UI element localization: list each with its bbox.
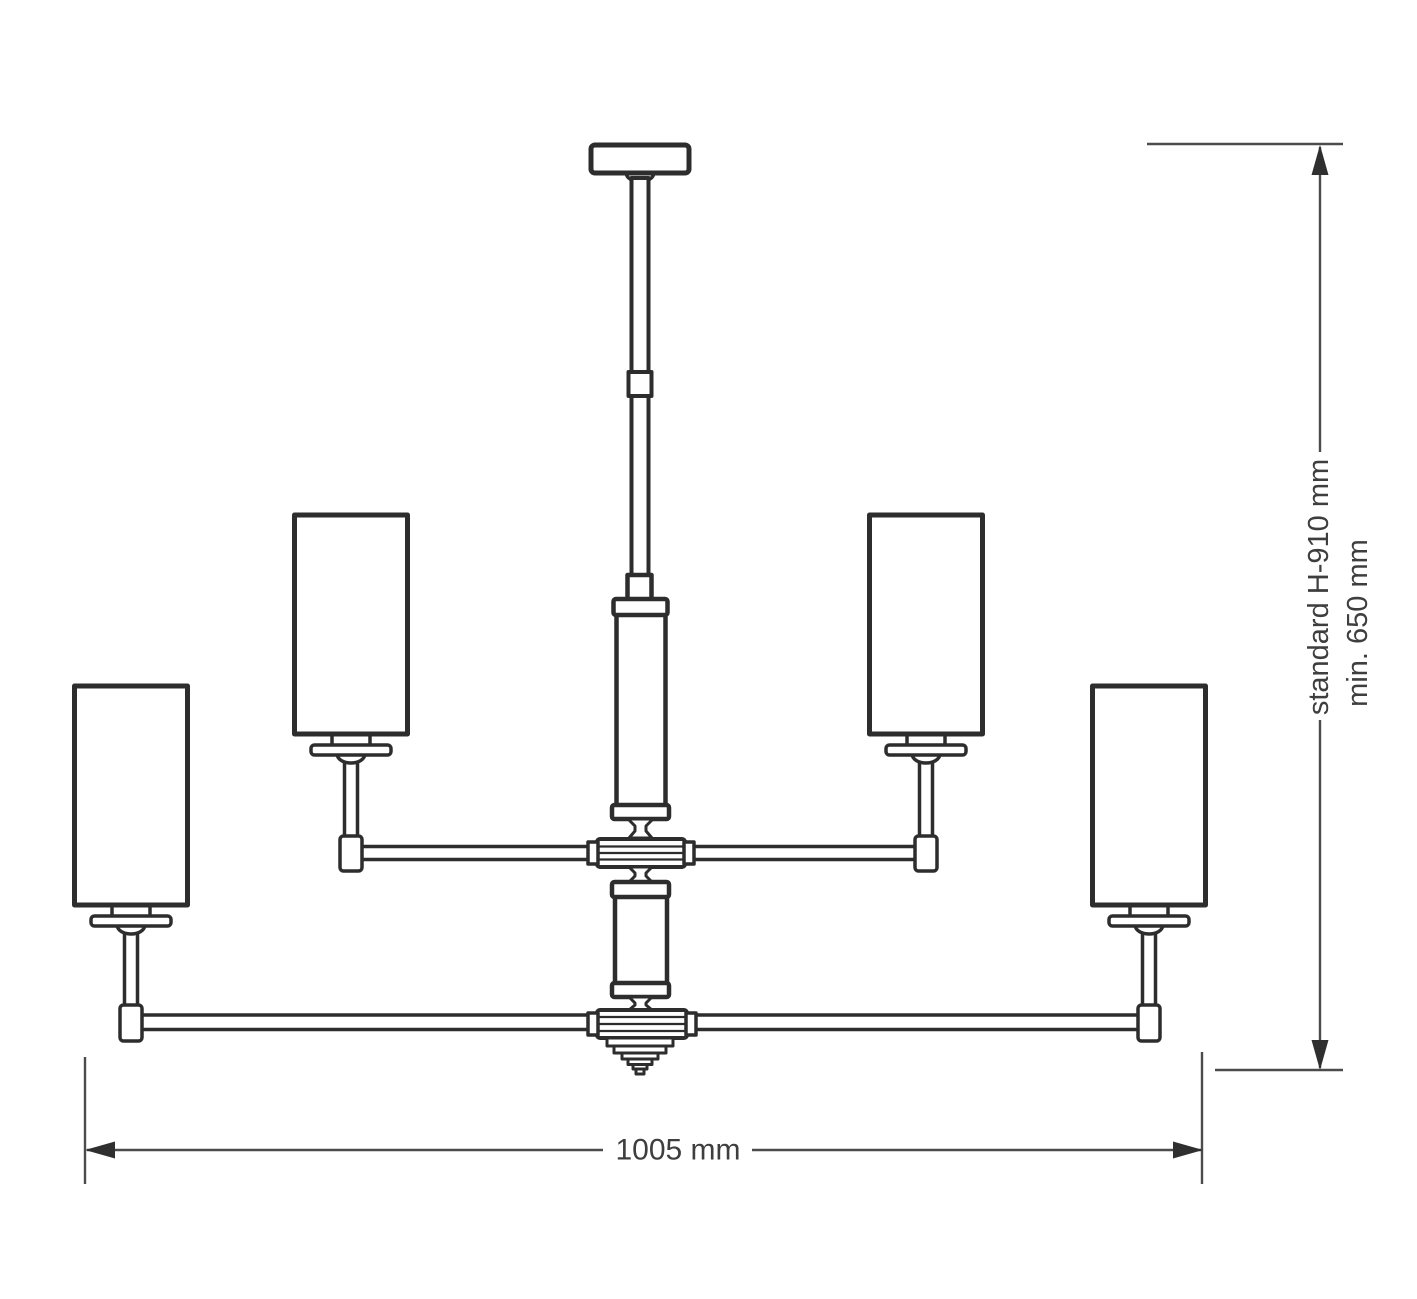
lower-left-arm: [128, 1015, 593, 1030]
height-standard-label: standard H-910 mm: [1303, 459, 1335, 715]
suspension: [591, 145, 689, 577]
chandelier-drawing: [75, 145, 1206, 1074]
rod-coupler: [629, 372, 652, 396]
lamp-shade: [870, 515, 983, 734]
chandelier-dimension-diagram: standard H-910 mm min. 650 mm 1005 mm: [0, 0, 1417, 1299]
rod-upper: [632, 178, 649, 374]
upper-hub-right-cap: [684, 842, 694, 864]
mid-column-top-cap: [612, 882, 669, 897]
lamp-shade: [75, 686, 188, 905]
upper-hub-left-cap: [588, 842, 598, 864]
holder-plate: [311, 745, 391, 755]
upper-column-top-cap: [614, 599, 668, 615]
lamp-post: [125, 933, 138, 1007]
rod-lower: [632, 396, 649, 577]
lower-hub-right-cap: [686, 1013, 696, 1035]
arm-end-block: [120, 1005, 142, 1041]
arrow-up-icon: [1312, 145, 1329, 175]
finial: [607, 1038, 673, 1074]
lamp-lower-right: [1093, 686, 1206, 1041]
diagram-canvas: standard H-910 mm min. 650 mm 1005 mm: [0, 0, 1417, 1299]
upper-column-bottom-cap: [612, 805, 669, 819]
arm-end-block: [915, 836, 937, 871]
lamp-shade: [1093, 686, 1206, 905]
lamp-post: [920, 762, 933, 838]
lamp-upper-left: [295, 515, 408, 871]
arm-end-block: [1138, 1005, 1160, 1041]
ceiling-canopy: [591, 145, 689, 173]
arrow-left-icon: [85, 1142, 115, 1159]
finial-tip: [636, 1069, 644, 1074]
lower-hub-left-cap: [588, 1013, 598, 1035]
lamp-upper-right: [870, 515, 983, 871]
upper-hub: [588, 839, 694, 867]
height-dimension: standard H-910 mm min. 650 mm: [1147, 144, 1374, 1070]
arm-end-block: [340, 836, 362, 871]
mid-column-bottom-cap: [612, 983, 669, 997]
lamp-post: [345, 762, 358, 838]
holder-plate: [1109, 916, 1189, 926]
upper-right-arm: [688, 847, 928, 860]
mid-column: [612, 867, 669, 1010]
width-label: 1005 mm: [615, 1134, 740, 1167]
upper-spool-connector: [628, 819, 653, 838]
upper-left-arm: [352, 847, 592, 860]
lamp-lower-left: [75, 686, 188, 1041]
lower-right-arm: [688, 1015, 1153, 1030]
arrow-down-icon: [1312, 1040, 1329, 1070]
lower-hub: [588, 1010, 696, 1038]
upper-column: [612, 575, 669, 838]
lamp-post: [1143, 933, 1156, 1007]
upper-column-body: [617, 613, 666, 807]
lamp-shade: [295, 515, 408, 734]
holder-plate: [91, 916, 171, 926]
mid-column-body: [615, 896, 667, 985]
arrow-right-icon: [1173, 1142, 1203, 1159]
holder-plate: [886, 745, 966, 755]
height-min-label: min. 650 mm: [1342, 539, 1374, 707]
